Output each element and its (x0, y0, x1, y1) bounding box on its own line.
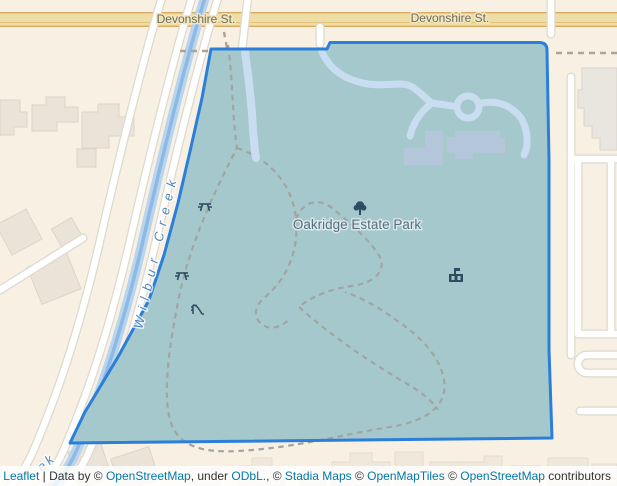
attribution-text: , © (266, 469, 285, 483)
leaflet-link[interactable]: Leaflet (3, 469, 39, 483)
odbl-link[interactable]: ODbL. (231, 469, 266, 483)
attribution-bar: Leaflet | Data by © OpenStreetMap, under… (0, 466, 617, 486)
street-label-devonshire-right: Devonshire St. (411, 11, 490, 25)
attribution-text: © (352, 469, 368, 483)
street-label-devonshire-left: Devonshire St. (157, 12, 236, 26)
attribution-text: | Data by © (39, 469, 106, 483)
attribution-text: , under (191, 469, 232, 483)
building (77, 149, 96, 167)
openstreetmap-link[interactable]: OpenStreetMap (460, 469, 545, 483)
attribution-text: contributors (545, 469, 611, 483)
leaflet-map[interactable]: Devonshire St. Devonshire St. Oakridge E… (0, 0, 617, 486)
attribution-text: © (445, 469, 461, 483)
openmaptiles-link[interactable]: OpenMapTiles (367, 469, 445, 483)
map-canvas: Devonshire St. Devonshire St. Oakridge E… (0, 0, 617, 486)
devonshire-street-road (0, 12, 617, 27)
road-surface (0, 12, 617, 27)
park-name-label: Oakridge Estate Park (293, 217, 422, 232)
openstreetmap-link[interactable]: OpenStreetMap (106, 469, 191, 483)
stadia-maps-link[interactable]: Stadia Maps (285, 469, 352, 483)
